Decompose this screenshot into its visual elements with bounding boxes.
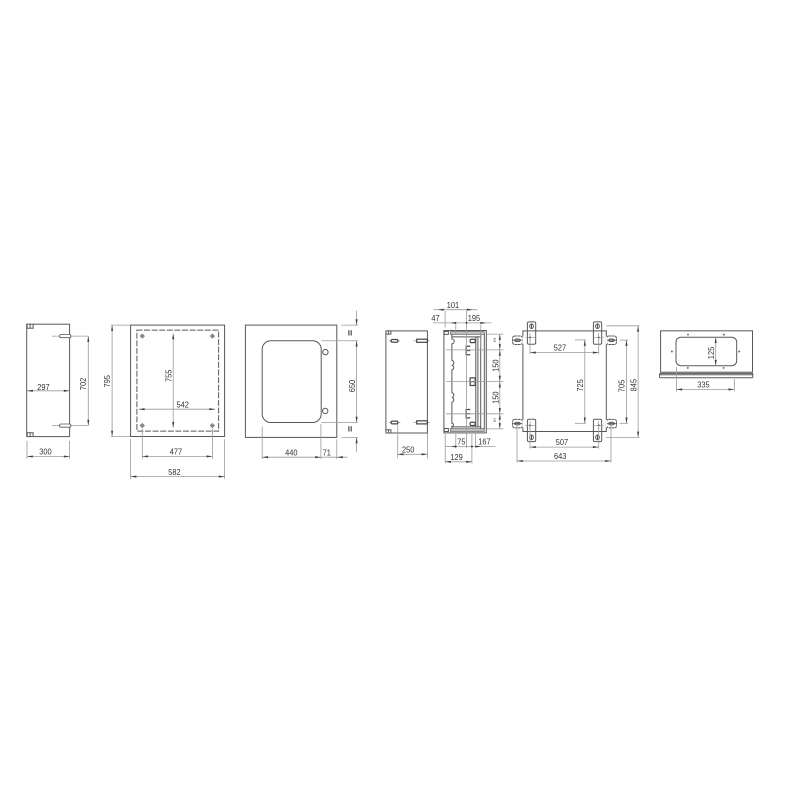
svg-text:300: 300 [39, 447, 52, 457]
svg-text:150: 150 [490, 391, 500, 404]
svg-text:47: 47 [431, 313, 439, 323]
svg-text:527: 527 [554, 343, 567, 353]
svg-text:650: 650 [347, 380, 357, 393]
svg-text:75: 75 [457, 437, 465, 447]
svg-text:507: 507 [556, 437, 569, 447]
svg-text:125: 125 [706, 347, 716, 360]
svg-text:845: 845 [628, 379, 638, 392]
svg-text:477: 477 [170, 447, 183, 457]
svg-text:167: 167 [478, 437, 491, 447]
svg-text:150: 150 [490, 359, 500, 372]
svg-text:195: 195 [468, 313, 481, 323]
svg-text:542: 542 [177, 400, 190, 410]
svg-text:582: 582 [168, 467, 181, 477]
svg-text:643: 643 [554, 451, 567, 461]
svg-text:250: 250 [402, 444, 415, 454]
svg-text:101: 101 [447, 300, 460, 310]
svg-text:440: 440 [285, 447, 298, 457]
svg-text:335: 335 [697, 380, 710, 390]
svg-text:297: 297 [37, 382, 50, 392]
svg-text:71: 71 [323, 447, 331, 457]
svg-text:129: 129 [450, 452, 463, 462]
svg-text:702: 702 [78, 378, 88, 391]
svg-text:755: 755 [163, 369, 173, 382]
svg-text:705: 705 [617, 380, 627, 393]
svg-text:795: 795 [102, 375, 112, 388]
svg-text:725: 725 [575, 379, 585, 392]
